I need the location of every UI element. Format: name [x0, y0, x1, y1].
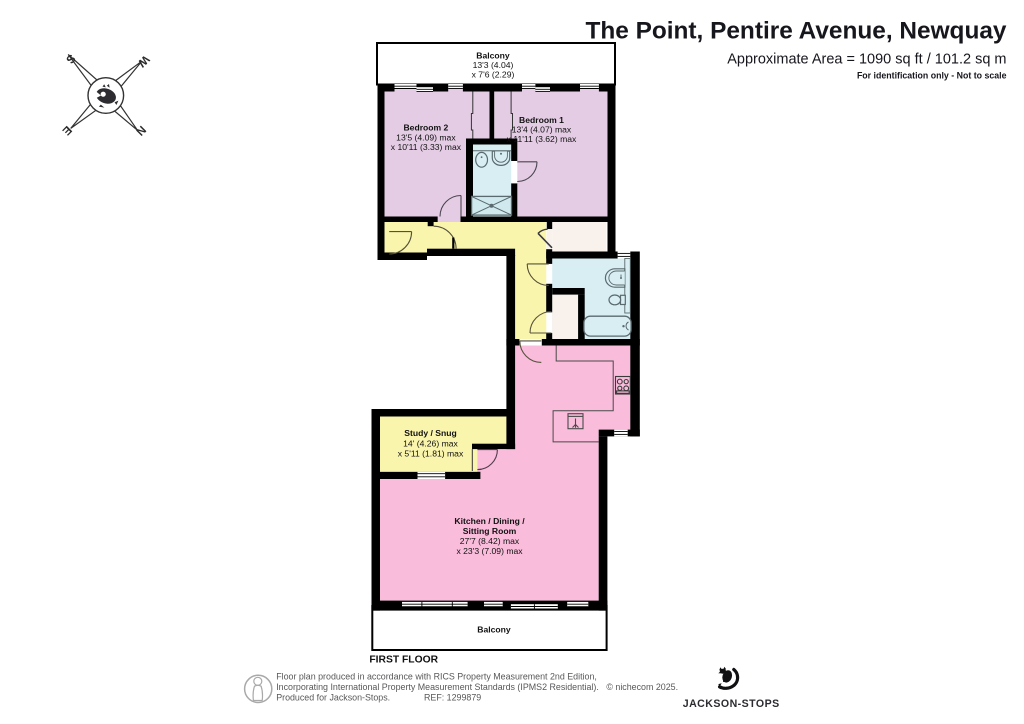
svg-text:Bedroom 2: Bedroom 2 [403, 122, 448, 132]
svg-text:N: N [133, 123, 147, 137]
svg-text:13'5 (4.09) max: 13'5 (4.09) max [396, 132, 456, 142]
svg-text:E: E [59, 123, 73, 137]
svg-text:Incorporating International Pr: Incorporating International Property Mea… [276, 682, 599, 692]
svg-text:27'7 (8.42) max: 27'7 (8.42) max [460, 536, 520, 546]
svg-text:Floor plan produced in accorda: Floor plan produced in accordance with R… [276, 671, 597, 681]
svg-text:14' (4.26) max: 14' (4.26) max [403, 438, 458, 448]
svg-text:x 7'6 (2.29): x 7'6 (2.29) [472, 69, 515, 79]
svg-text:Balcony: Balcony [477, 624, 511, 634]
svg-text:The Point, Pentire Avenue, New: The Point, Pentire Avenue, Newquay [585, 17, 1006, 44]
svg-text:Kitchen / Dining /: Kitchen / Dining / [454, 516, 525, 526]
svg-text:Study / Snug: Study / Snug [404, 428, 457, 438]
svg-text:Balcony: Balcony [476, 50, 510, 60]
svg-text:© nichecom 2025.: © nichecom 2025. [606, 682, 678, 692]
svg-text:Produced for Jackson-Stops.: Produced for Jackson-Stops. [276, 693, 390, 703]
svg-text:REF: 1299879: REF: 1299879 [424, 693, 481, 703]
svg-text:x 23'3 (7.09) max: x 23'3 (7.09) max [456, 546, 523, 556]
svg-text:Bedroom 1: Bedroom 1 [519, 115, 564, 125]
svg-text:JACKSON-STOPS: JACKSON-STOPS [683, 698, 780, 710]
svg-text:For identification only - Not: For identification only - Not to scale [857, 71, 1007, 81]
svg-text:Approximate Area = 1090 sq ft: Approximate Area = 1090 sq ft / 101.2 sq… [727, 52, 1006, 68]
svg-text:Sitting Room: Sitting Room [463, 526, 517, 536]
svg-text:x 11'11 (3.62) max: x 11'11 (3.62) max [507, 134, 577, 144]
svg-text:13'4 (4.07) max: 13'4 (4.07) max [512, 125, 572, 135]
svg-text:x 5'11 (1.81) max: x 5'11 (1.81) max [398, 448, 464, 458]
svg-text:FIRST FLOOR: FIRST FLOOR [369, 655, 438, 666]
svg-text:x 10'11 (3.33) max: x 10'11 (3.33) max [391, 142, 462, 152]
